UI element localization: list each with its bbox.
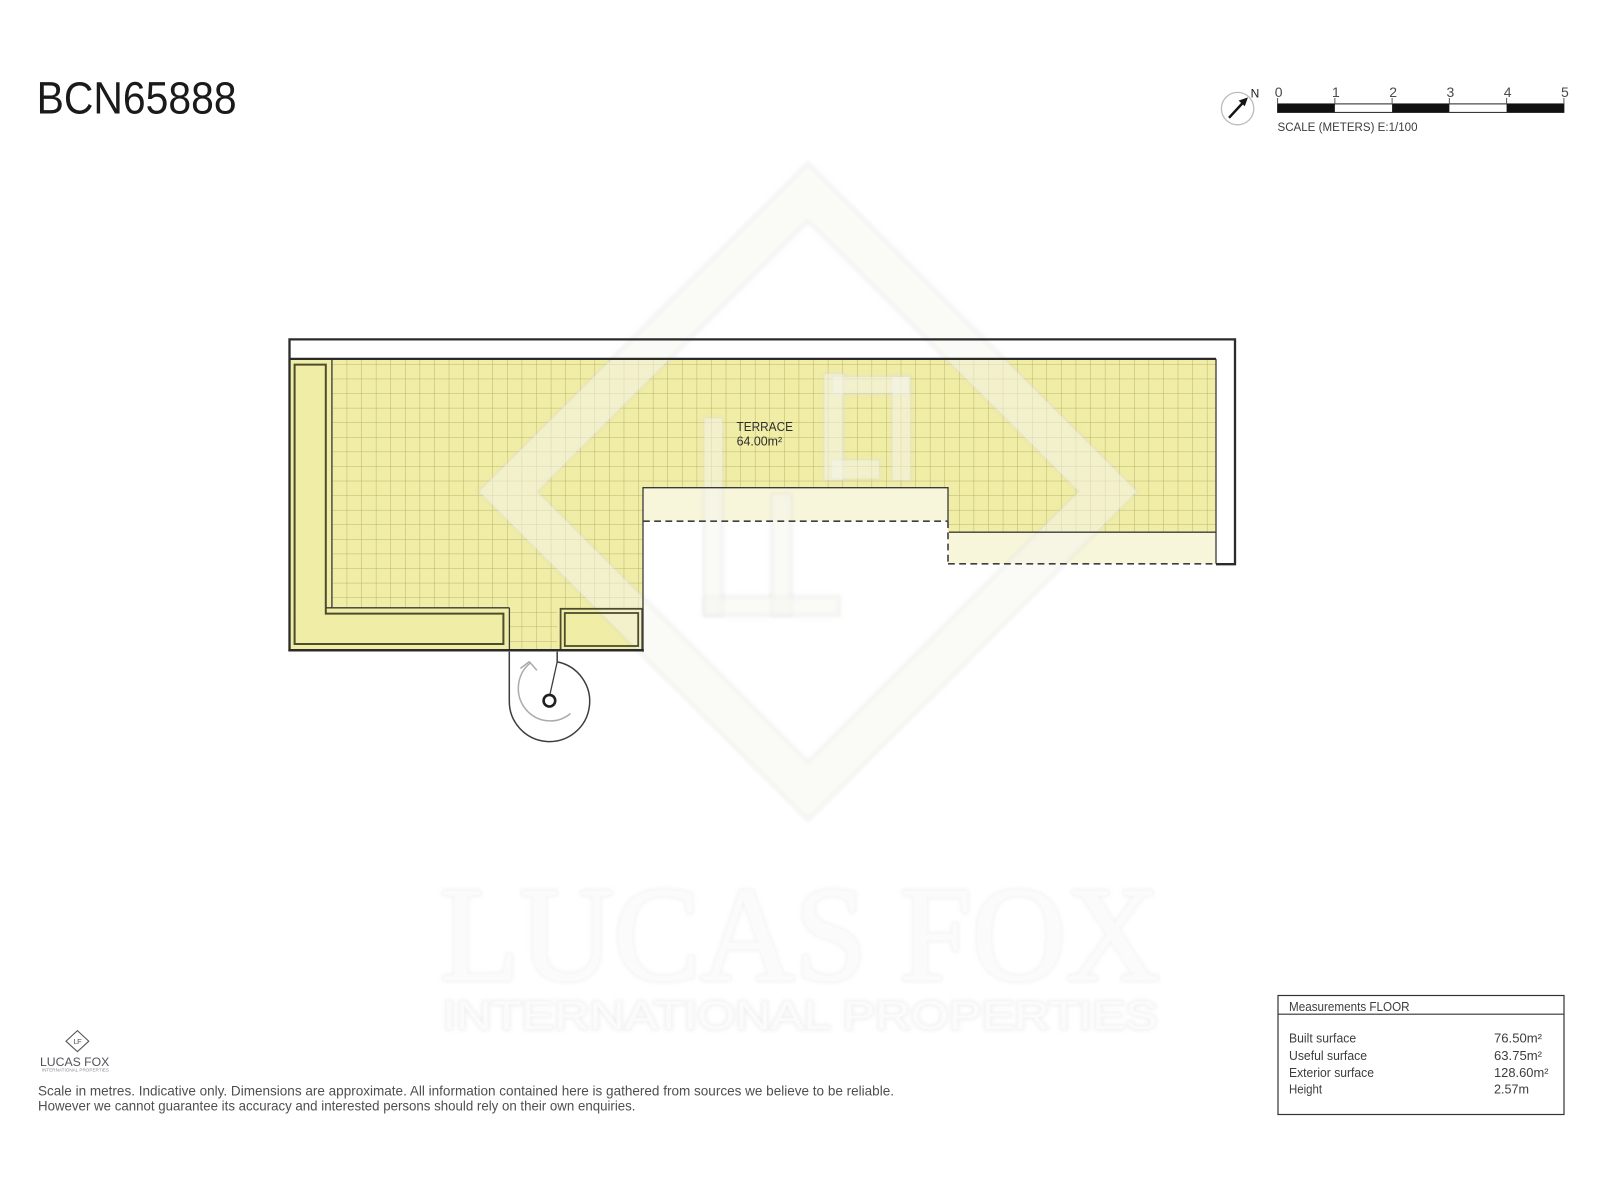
svg-text:Scale in metres. Indicative on: Scale in metres. Indicative only. Dimens… [38, 1084, 894, 1099]
svg-text:2: 2 [1389, 84, 1397, 100]
svg-text:63.75m²: 63.75m² [1494, 1049, 1542, 1063]
svg-text:128.60m²: 128.60m² [1494, 1066, 1549, 1080]
svg-text:INTERNATIONAL PROPERTIES: INTERNATIONAL PROPERTIES [443, 994, 1158, 1038]
svg-text:Useful surface: Useful surface [1289, 1049, 1367, 1063]
svg-text:64.00m²: 64.00m² [737, 434, 783, 449]
svg-text:1: 1 [1332, 84, 1340, 100]
svg-text:LF: LF [74, 1037, 83, 1046]
svg-text:INTERNATIONAL PROPERTIES: INTERNATIONAL PROPERTIES [42, 1067, 109, 1072]
svg-text:TERRACE: TERRACE [737, 419, 794, 434]
svg-text:0: 0 [1275, 84, 1283, 100]
svg-text:LUCAS FOX: LUCAS FOX [440, 860, 1160, 1010]
svg-text:76.50m²: 76.50m² [1494, 1031, 1542, 1045]
svg-text:Height: Height [1289, 1083, 1322, 1097]
svg-text:2.57m: 2.57m [1494, 1083, 1529, 1097]
svg-text:N: N [1251, 86, 1260, 100]
svg-text:4: 4 [1504, 84, 1512, 100]
svg-text:3: 3 [1446, 84, 1454, 100]
svg-text:Exterior surface: Exterior surface [1289, 1066, 1374, 1080]
svg-text:However we cannot guarantee it: However we cannot guarantee its accuracy… [38, 1099, 636, 1114]
svg-text:Measurements FLOOR: Measurements FLOOR [1289, 1000, 1410, 1014]
svg-text:BCN65888: BCN65888 [37, 73, 237, 124]
svg-text:Built surface: Built surface [1289, 1031, 1356, 1045]
svg-text:5: 5 [1561, 84, 1569, 100]
svg-text:SCALE (METERS) E:1/100: SCALE (METERS) E:1/100 [1278, 120, 1418, 134]
